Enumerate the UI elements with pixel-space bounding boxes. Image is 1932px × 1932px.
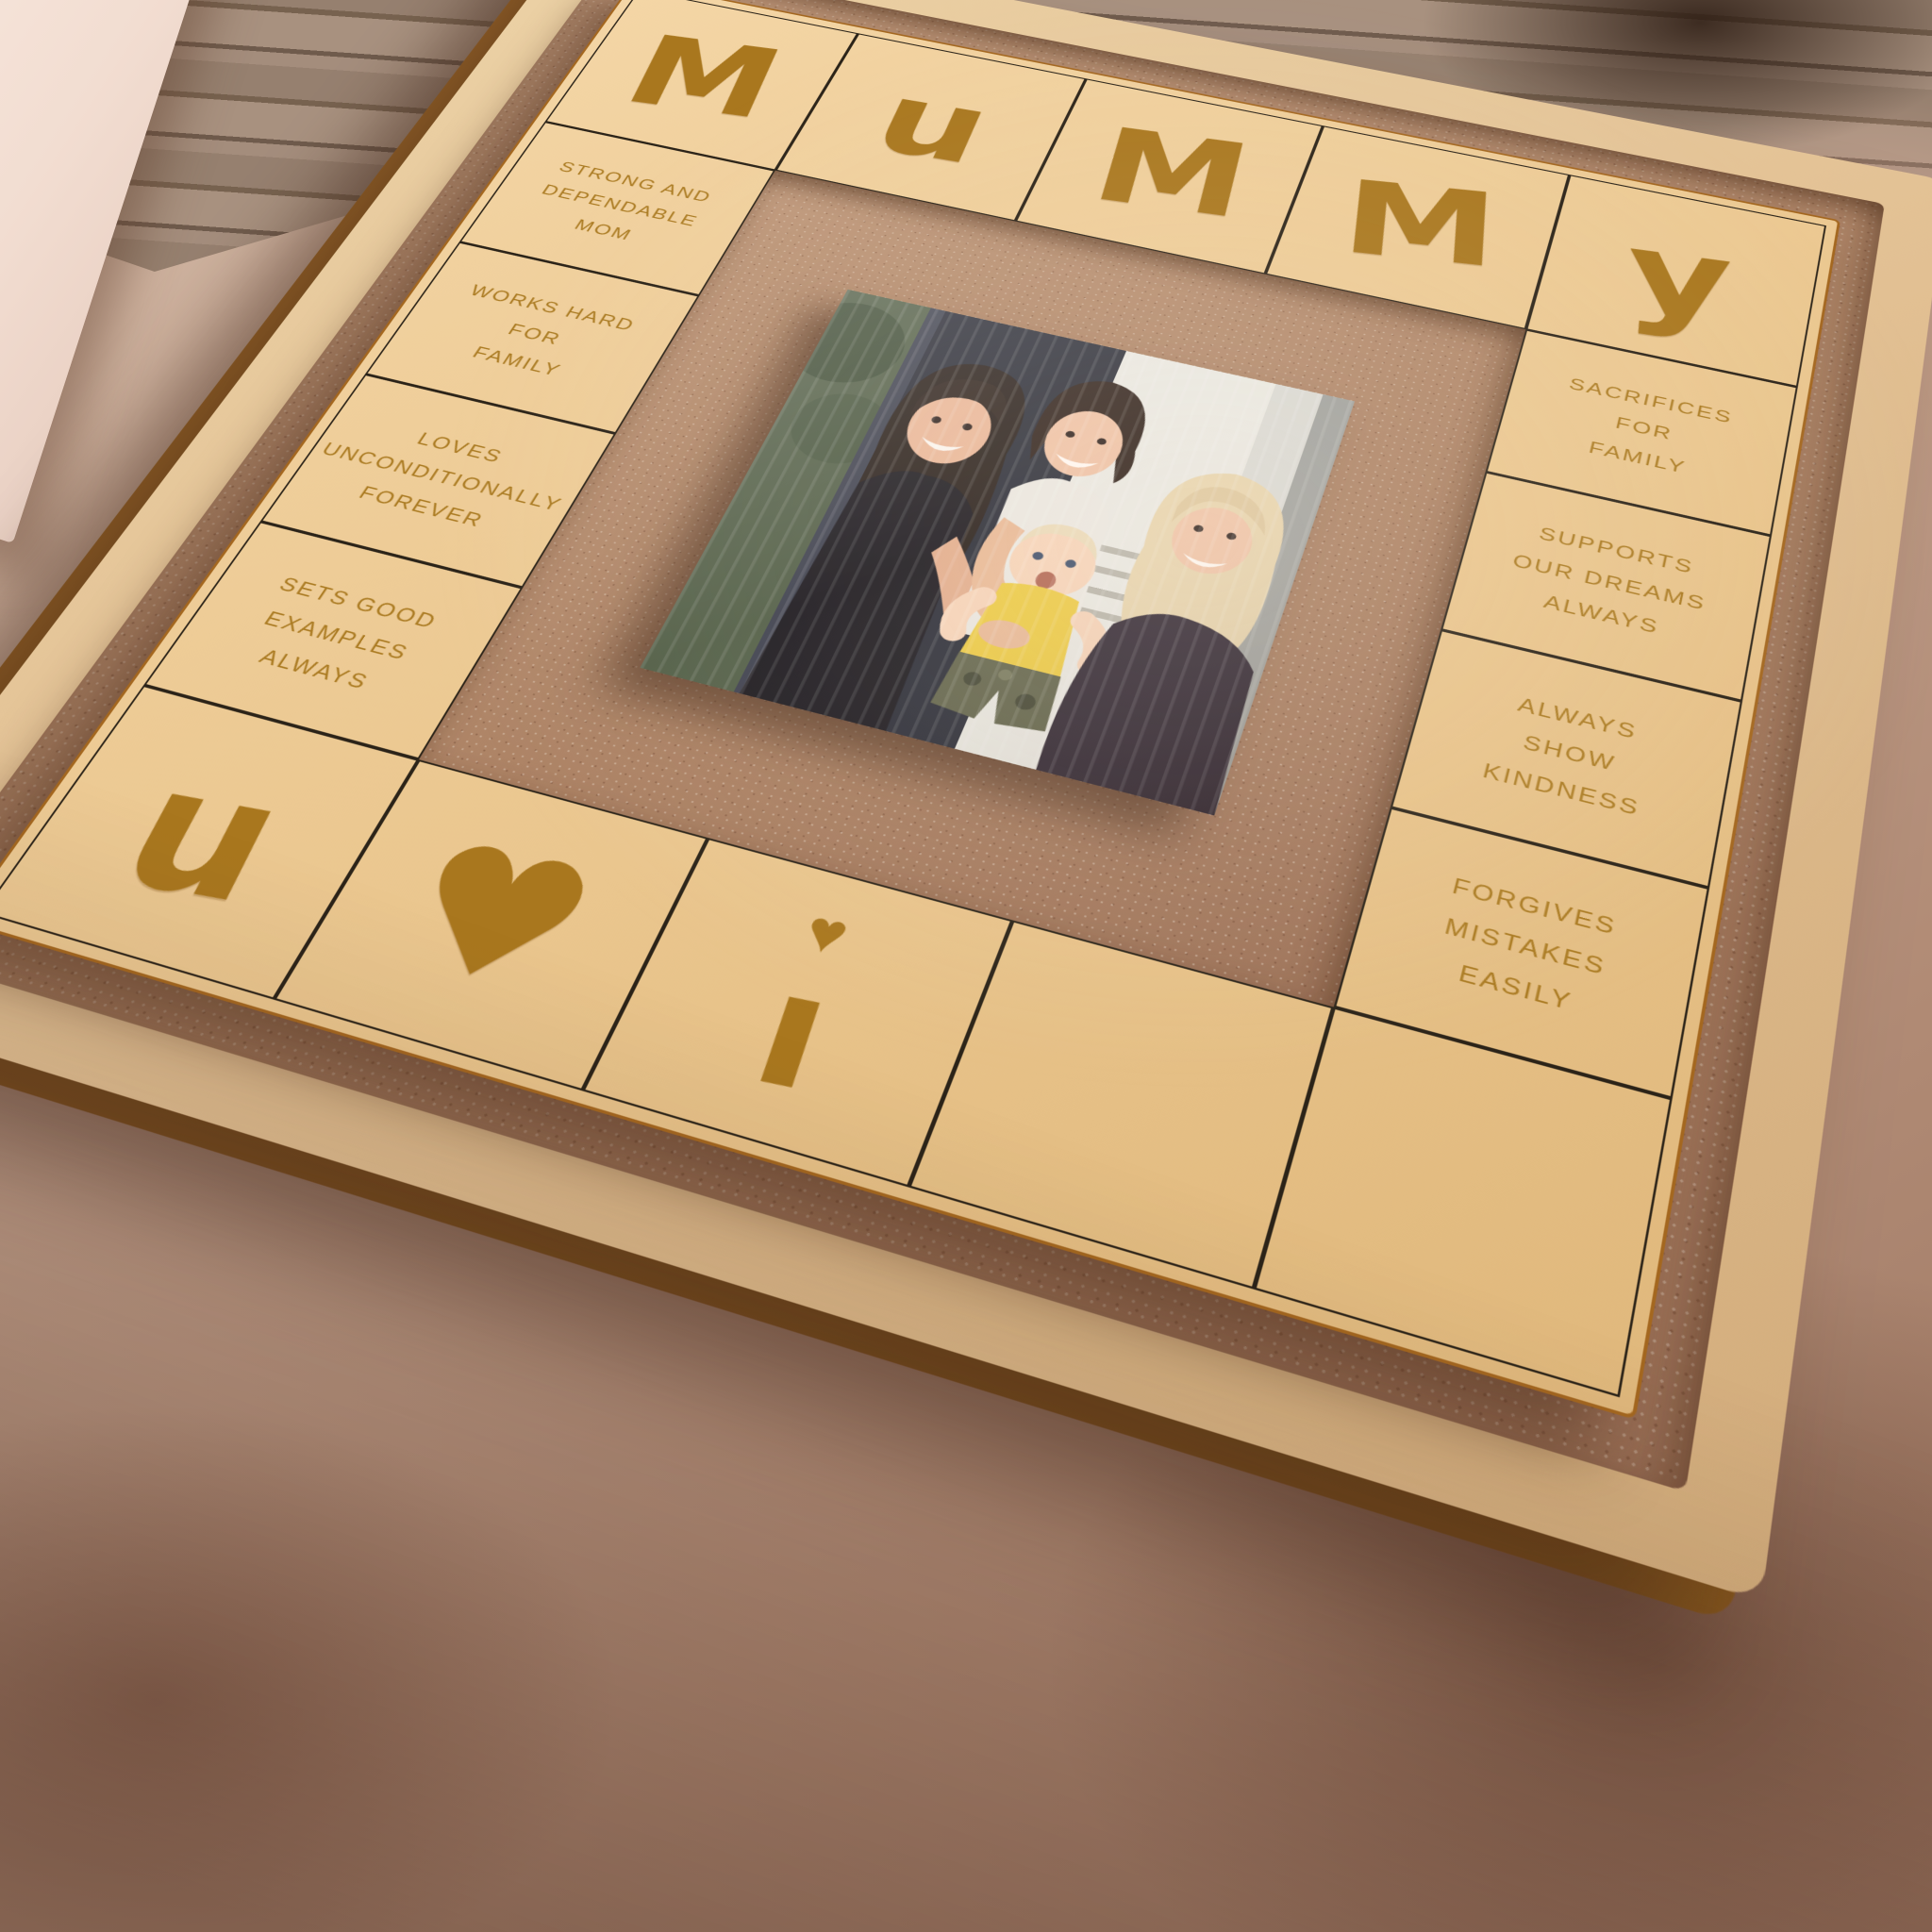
phrase-text: SETS GOOD EXAMPLES ALWAYS: [225, 567, 445, 707]
phrase-text: SUPPORTS OUR DREAMS ALWAYS: [1500, 513, 1715, 654]
phrase-text: WORKS HARD FOR FAMILY: [425, 276, 641, 394]
phrase-text: SACRIFICES FOR FAMILY: [1551, 369, 1736, 491]
i-stem: ı: [739, 953, 848, 1111]
letter-m: M: [1082, 114, 1258, 234]
letter-m: M: [1337, 167, 1501, 283]
phrase-text: ALWAYS SHOW KINDNESS: [1478, 682, 1657, 827]
letter-m: M: [611, 23, 795, 133]
letter-y: y: [1623, 217, 1734, 340]
letter-i-with-heart-dot: ♥ ı: [739, 902, 864, 1110]
heart-icon: ♥: [371, 819, 618, 1021]
product-photo-scene: M u M M y STRONG AND DEPENDABLE MOM SACR…: [0, 0, 1932, 1932]
photo-block: [640, 290, 1355, 816]
phrase-text: STRONG AND DEPENDABLE MOM: [518, 154, 719, 259]
phrase-text: FORGIVES MISTAKES EASILY: [1427, 866, 1621, 1031]
family-photo: [640, 290, 1355, 816]
letter-u: u: [97, 746, 308, 929]
letter-u: u: [860, 71, 1005, 178]
phrase-text: LOVES UNCONDITIONALLY FOREVER: [292, 405, 588, 552]
